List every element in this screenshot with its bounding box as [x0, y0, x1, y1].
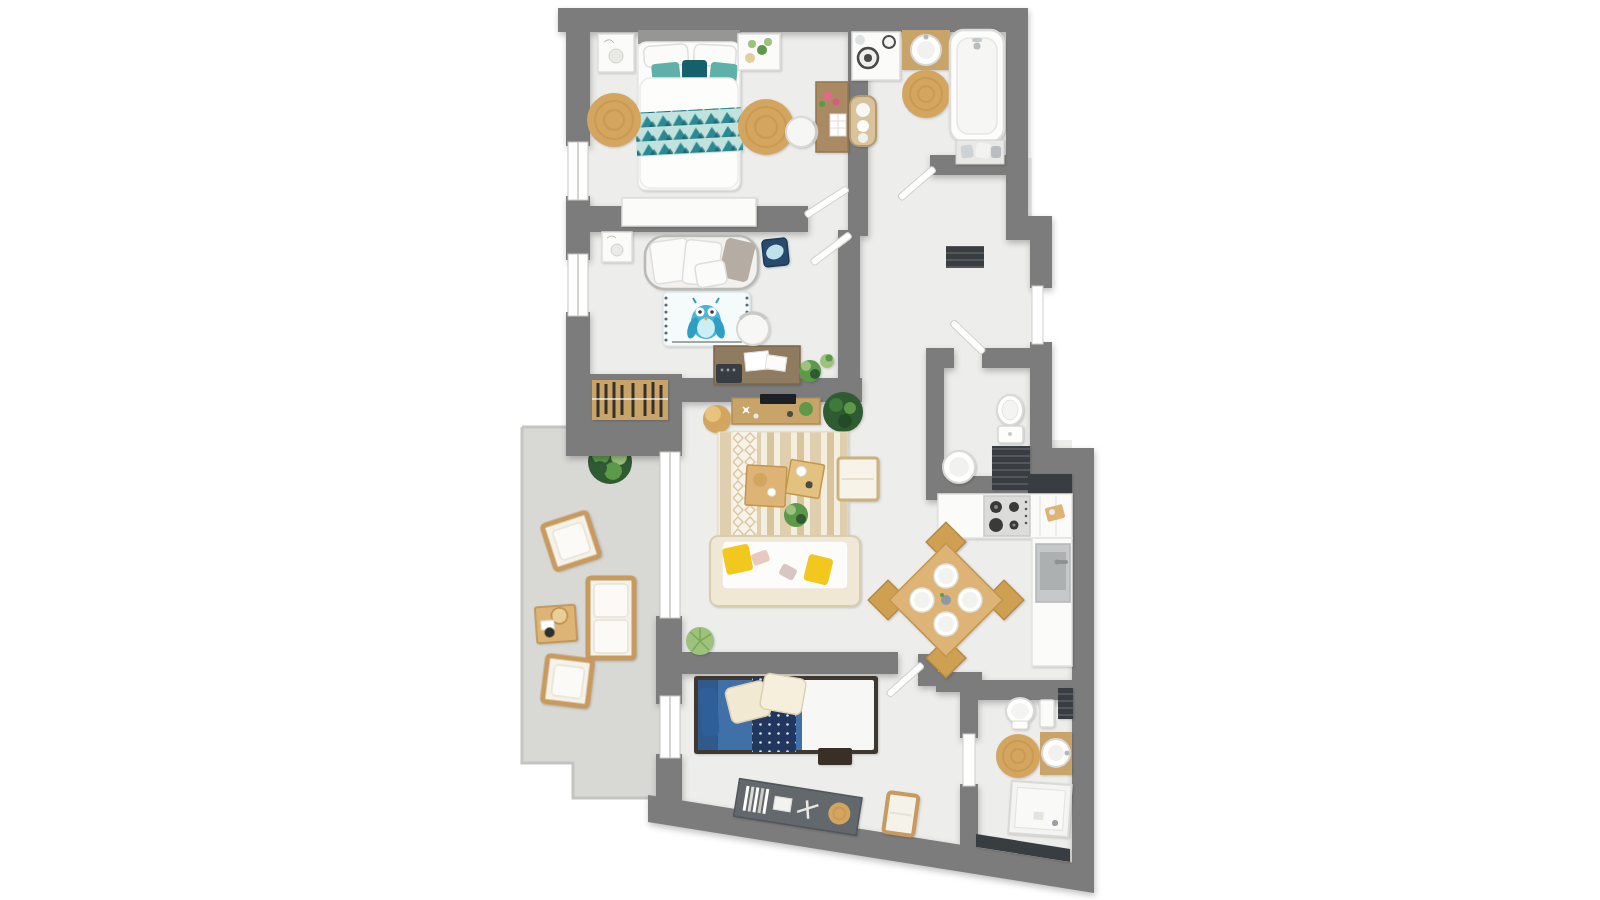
nursery-blue-tray-table	[762, 238, 790, 267]
wall-bathroom2-left-a	[960, 680, 978, 738]
nursery-open-wardrobe	[592, 380, 668, 420]
bath2-dark-shelf	[1058, 688, 1073, 719]
terrace-coffee-table	[535, 605, 577, 644]
bed2-pillow-2	[759, 673, 807, 716]
living-bench	[838, 458, 878, 500]
nursery-desk	[714, 346, 800, 384]
living-floor-plant	[686, 627, 714, 655]
window-bedroom-1	[568, 142, 588, 200]
bath1-jute-rug	[902, 70, 950, 118]
bed1-nightstand-left	[598, 34, 634, 72]
bed1-nightstand-right	[738, 34, 780, 70]
bath2-shower	[1008, 781, 1071, 837]
bed2-side-chair	[883, 792, 918, 836]
wc-toilet	[997, 395, 1023, 443]
bed1-desk	[816, 82, 848, 152]
nursery-chair	[737, 313, 769, 345]
kitchen-backsplash	[1028, 474, 1072, 494]
kitchen-counter-top	[938, 494, 1072, 538]
bath1-vanity-sink	[902, 30, 950, 70]
wall-livingleft-block2	[656, 754, 682, 814]
terrace-sofa	[588, 578, 634, 658]
bath1-washer	[852, 32, 900, 80]
living-coffee-table-1	[745, 465, 787, 507]
living-coffee-table-2	[785, 459, 824, 498]
bath2-cabinet	[1040, 700, 1054, 727]
nursery-nightstand	[602, 232, 632, 262]
floor-plan-canvas	[0, 0, 1600, 900]
nursery-owl-rug	[663, 292, 750, 346]
bed1-rug-right	[738, 99, 794, 155]
sofa-yellow-pillow-left	[722, 543, 754, 575]
living-rug-plant	[784, 503, 808, 527]
wall-left-a	[566, 8, 590, 146]
wall-wc-top-b	[982, 348, 1040, 368]
hallway	[946, 246, 984, 268]
floor-plan-svg	[0, 0, 1600, 900]
window-nursery	[568, 254, 588, 316]
bath1-towel-shelf	[956, 140, 1004, 164]
bed1-desk-chair	[786, 117, 817, 147]
bed2	[694, 673, 878, 754]
wall-left-c	[566, 312, 590, 380]
wall-wc-top-a	[926, 348, 954, 368]
bath1-laundry-basket	[850, 96, 876, 146]
bed1-teal-band	[635, 107, 743, 156]
kitchen-stove	[984, 496, 1030, 536]
wall-entry-a	[1030, 238, 1052, 288]
hall-doormat-texture	[946, 246, 984, 268]
door-bathroom-2	[963, 734, 975, 786]
living-plant-large	[823, 392, 863, 432]
wall-entry-step	[1006, 216, 1052, 240]
wall-right-bottom	[1072, 448, 1094, 884]
wc-round-basin	[943, 451, 975, 483]
wc-dark-cabinet	[992, 446, 1030, 490]
wall-nursery-right	[838, 230, 860, 392]
bath2-jute-rug	[996, 734, 1040, 778]
wall-top	[558, 8, 1028, 32]
living-sideboard	[732, 394, 820, 424]
bed1-rug-left	[587, 93, 641, 147]
bed2-blue-cushion	[698, 687, 719, 736]
window-bedroom-2	[660, 696, 680, 758]
terrace-armchair-bottom	[542, 655, 592, 706]
terrace	[522, 427, 662, 798]
living-tv	[760, 394, 796, 404]
bath2-vanity-sink	[1040, 732, 1072, 775]
nursery-typewriter	[716, 364, 742, 383]
door-entry-front	[1032, 286, 1043, 344]
nursery-daybed	[645, 236, 758, 289]
kitchen-sink-counter	[1032, 538, 1072, 666]
living-sofa	[710, 536, 860, 606]
wall-bedroom2-top	[656, 652, 898, 674]
bath1-bathtub	[950, 30, 1004, 142]
living-pouf	[703, 405, 731, 433]
wall-right-top	[1006, 8, 1028, 220]
bed1-dresser	[622, 198, 756, 226]
wall-bathroom2-left-b	[960, 784, 978, 852]
window-living-slider	[660, 452, 680, 618]
bed2-foot-bench	[818, 748, 852, 765]
